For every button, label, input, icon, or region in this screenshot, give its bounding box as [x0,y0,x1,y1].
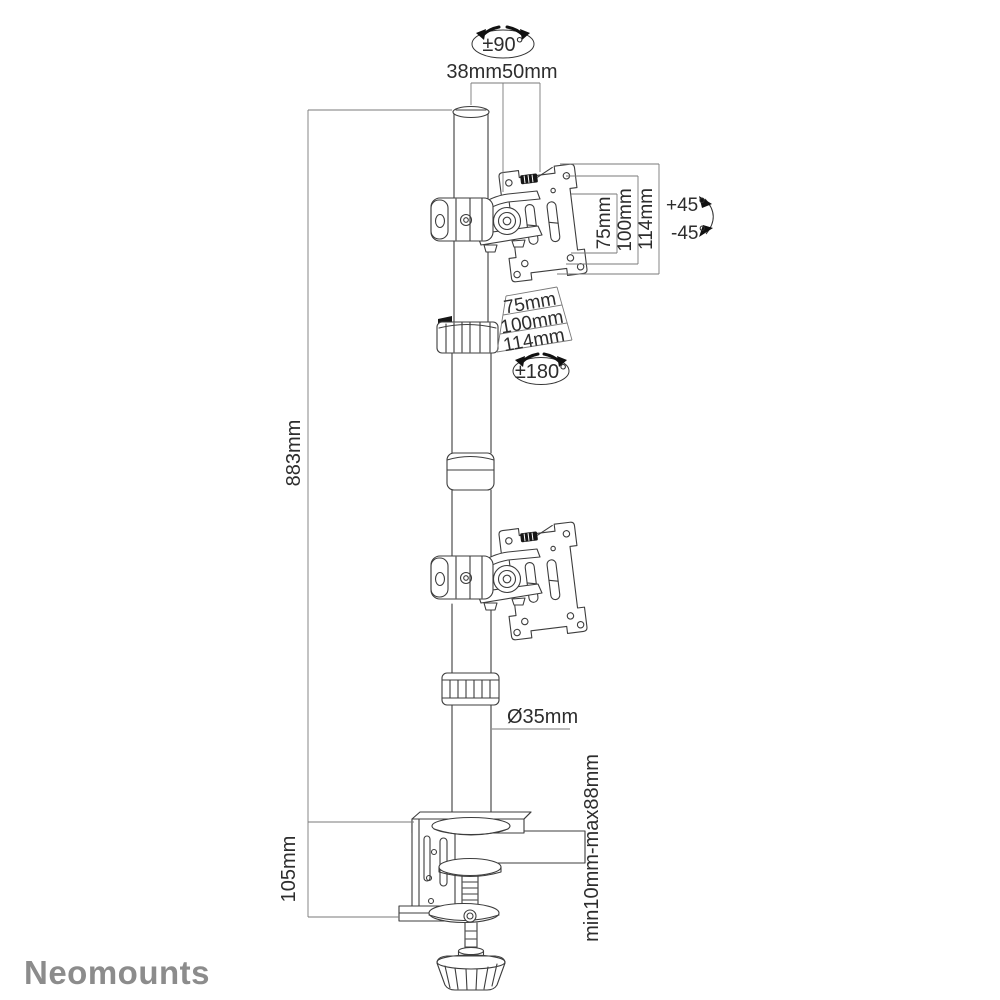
product-diagram: ±90° 38mm 50mm +45° -45° 75mm 100mm 114m… [0,0,1000,1000]
vesa-vertical-114-label: 114mm [636,188,657,250]
plate-rotation-label: ±180° [515,361,567,383]
monitor-mount-drawing: ±90° 38mm 50mm +45° -45° 75mm 100mm 114m… [0,0,1000,1000]
top-width-inner-label: 38mm [446,61,502,83]
vesa-vertical-75-label: 75mm [594,197,615,250]
pole-rotation-label: ±90° [482,34,523,56]
clamp-height-label: 105mm [278,836,300,903]
vesa-vertical-100-label: 100mm [615,188,636,251]
top-width-outer-label: 50mm [502,61,558,83]
pole-height-label: 883mm [283,420,305,487]
tilt-down-label: -45° [671,223,706,244]
pole-diameter-label: Ø35mm [507,706,578,728]
pole-base-plate [432,818,510,836]
desk-thickness-label: min10mm-max88mm [581,754,603,942]
dimension-labels: ±90° 38mm 50mm +45° -45° 75mm 100mm 114m… [24,34,706,991]
tilt-up-label: +45° [666,195,706,216]
brand-logo: Neomounts [24,954,210,991]
